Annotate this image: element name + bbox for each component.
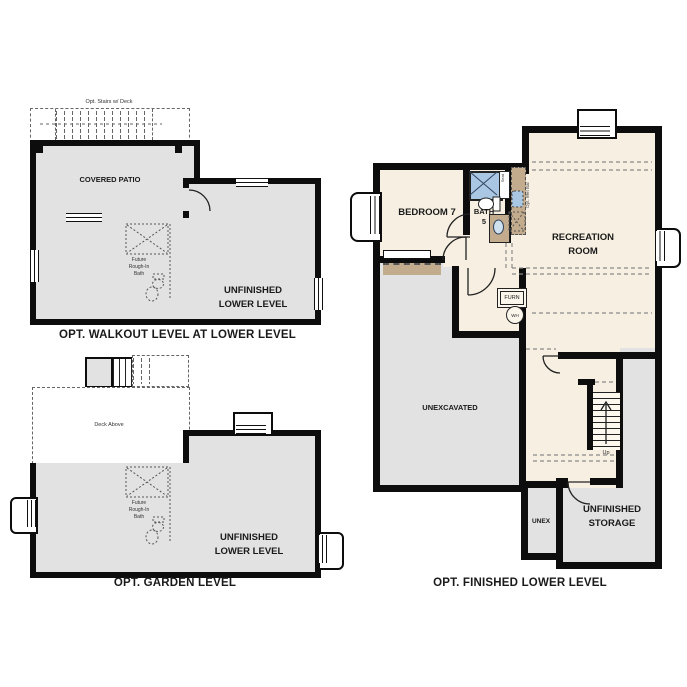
window xyxy=(580,126,610,136)
label-line: Future xyxy=(119,257,159,264)
window xyxy=(27,500,36,527)
shower xyxy=(469,171,503,201)
label-line: STORAGE xyxy=(562,517,662,531)
room-label-unexcavated: UNEXCAVATED xyxy=(400,403,500,412)
deck-above-note: Deck Above xyxy=(59,422,159,428)
window xyxy=(318,535,327,563)
window xyxy=(655,231,665,261)
window xyxy=(236,425,266,434)
room-label-unex: UNEX xyxy=(523,518,559,525)
wall xyxy=(373,163,529,170)
window-well-hatch xyxy=(383,263,441,275)
wall xyxy=(521,553,563,560)
stair-treads-dashed xyxy=(133,356,155,384)
window xyxy=(236,178,268,187)
deck-above-outline xyxy=(32,387,190,469)
future-bath-note: Future Rough-In Bath xyxy=(119,500,159,521)
wet-bar-counter xyxy=(511,167,526,235)
label-line: UNFINISHED xyxy=(562,503,662,517)
wall xyxy=(556,478,568,485)
room-label-unfinished-lower-level: UNFINISHED LOWER LEVEL xyxy=(203,284,303,312)
wet-bar-label: Opt. Wet Bar xyxy=(525,182,530,208)
label-line: UNFINISHED xyxy=(203,284,303,298)
label-line: Bath xyxy=(119,514,159,521)
lower-level-room-left xyxy=(30,463,190,578)
future-bath-note: Future Rough-In Bath xyxy=(119,257,159,278)
label-line: Rough-In xyxy=(119,507,159,514)
unfinished-storage-wing xyxy=(620,348,658,480)
room-label-bath: BATH 5 xyxy=(468,207,500,227)
furnace-label: FURN xyxy=(504,295,519,301)
label-line: ROOM xyxy=(533,245,633,259)
stair-treads xyxy=(111,357,134,388)
wall xyxy=(452,266,459,338)
lower-level-room-left xyxy=(30,218,190,325)
plan-title-walkout: OPT. WALKOUT LEVEL AT LOWER LEVEL xyxy=(25,329,330,341)
window xyxy=(370,196,380,234)
deck-note: Opt. Stairs w/ Deck xyxy=(59,99,159,105)
window xyxy=(66,213,102,222)
room-label-unfinished-lower-level: UNFINISHED LOWER LEVEL xyxy=(199,531,299,559)
door-opening xyxy=(183,188,190,211)
room-label-recreation: RECREATION ROOM xyxy=(533,231,633,259)
label-line: LOWER LEVEL xyxy=(199,545,299,559)
wall xyxy=(590,478,623,485)
label-line: 5 xyxy=(468,217,500,227)
label-line: Rough-In xyxy=(119,264,159,271)
label-line: BATH xyxy=(468,207,500,217)
floorplan-sheet: Seat Opt. Wet Bar FURN WH xyxy=(0,0,687,687)
wall xyxy=(452,331,526,338)
label-line: UNFINISHED xyxy=(199,531,299,545)
wall xyxy=(373,485,528,492)
label-line: RECREATION xyxy=(533,231,633,245)
plan-title-finished: OPT. FINISHED LOWER LEVEL xyxy=(370,577,670,589)
water-heater-label: WH xyxy=(511,313,519,318)
window xyxy=(30,250,39,282)
wall xyxy=(556,562,662,569)
wall xyxy=(558,352,620,359)
furnace: FURN xyxy=(497,288,527,308)
label-line: Bath xyxy=(119,271,159,278)
deck-divider xyxy=(55,109,56,140)
water-heater: WH xyxy=(506,306,524,324)
window-sill xyxy=(383,250,431,259)
window xyxy=(314,278,323,310)
shower-seat-label: Seat xyxy=(500,174,505,182)
patio-post xyxy=(175,146,182,153)
stairs xyxy=(593,392,620,450)
plan-title-garden: OPT. GARDEN LEVEL xyxy=(25,577,325,589)
room-label-covered-patio: COVERED PATIO xyxy=(60,175,160,184)
label-line: LOWER LEVEL xyxy=(203,298,303,312)
label-line: Future xyxy=(119,500,159,507)
room-label-bedroom7: BEDROOM 7 xyxy=(382,206,472,220)
deck-stair-treads xyxy=(56,109,152,140)
deck-divider xyxy=(152,109,153,140)
patio-post xyxy=(36,146,43,153)
stairs-up-label: Up xyxy=(596,450,616,456)
room-label-unfinished-storage: UNFINISHED STORAGE xyxy=(562,503,662,531)
